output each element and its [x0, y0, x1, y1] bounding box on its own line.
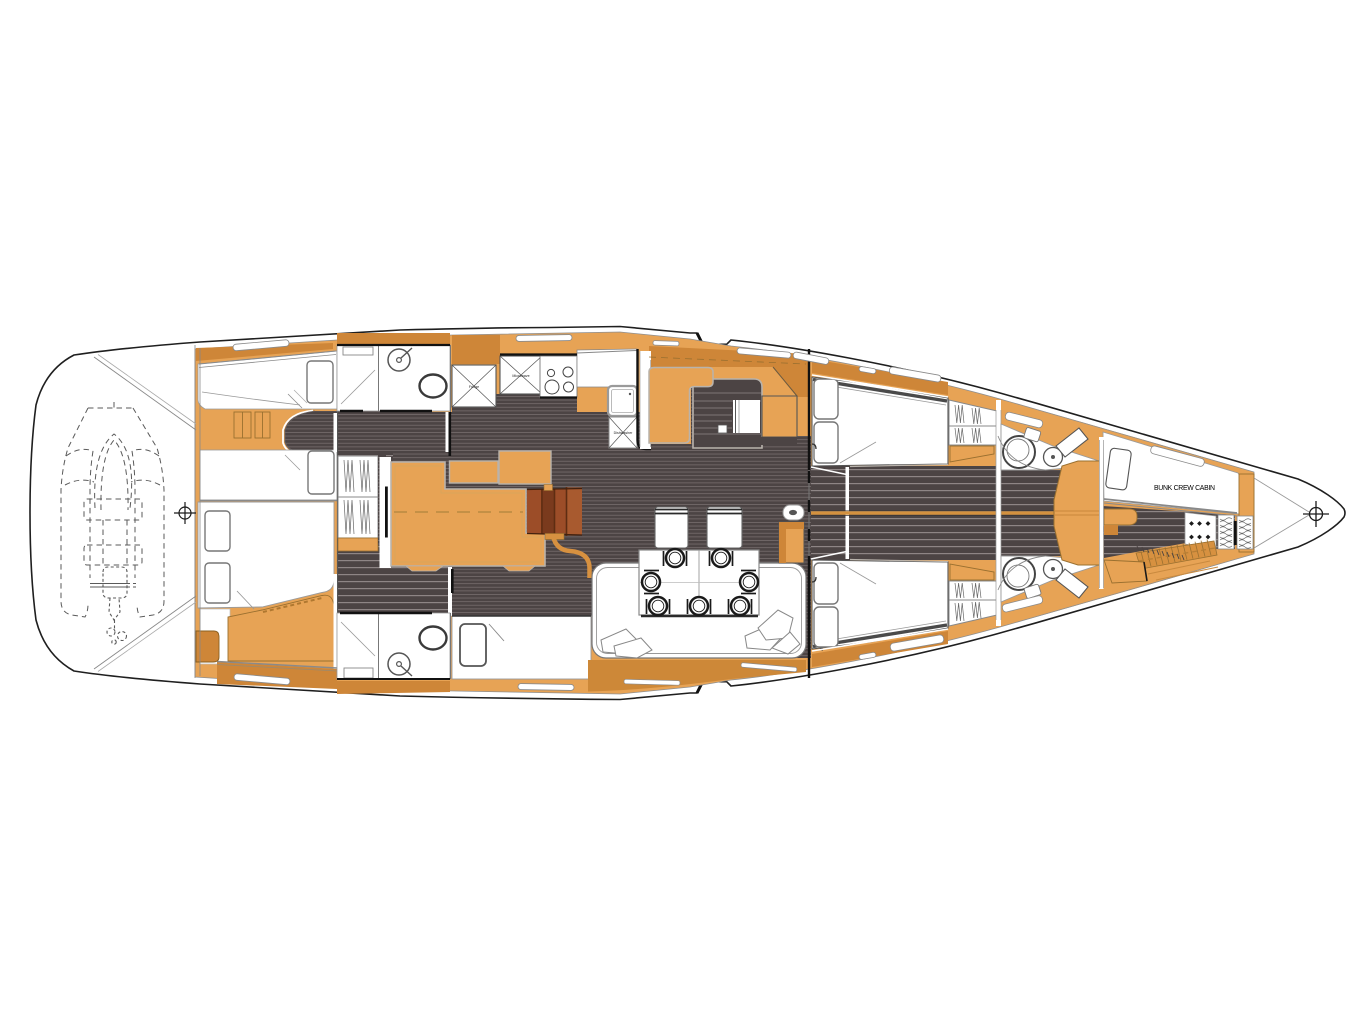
svg-text:BUNK CREW CABIN: BUNK CREW CABIN	[1154, 485, 1215, 492]
svg-text:Dishwasher: Dishwasher	[614, 431, 634, 435]
svg-text:Fridge: Fridge	[469, 385, 479, 389]
svg-text:Microwave: Microwave	[512, 374, 529, 378]
